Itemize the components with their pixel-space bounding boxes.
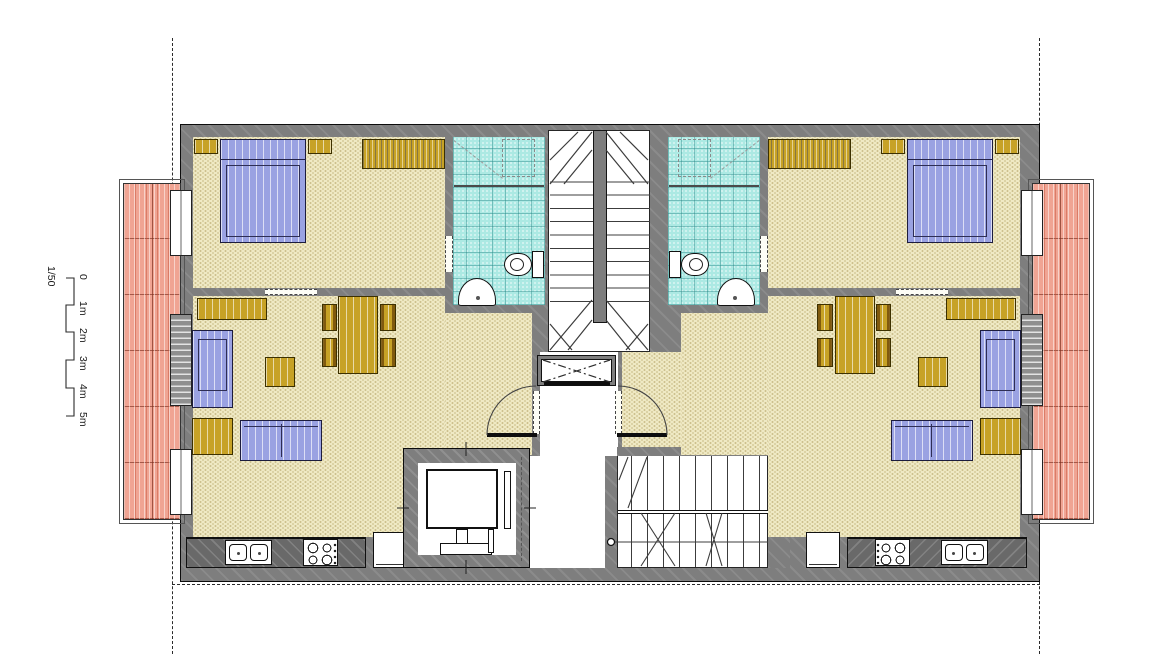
nightstand xyxy=(308,139,332,154)
nightstand xyxy=(881,139,905,154)
elevator-door-dash-line xyxy=(521,457,522,561)
side-table xyxy=(192,418,233,455)
apartment-unit-right xyxy=(603,0,1021,654)
entry-door-opening-right xyxy=(615,391,622,434)
bathroom-door-opening xyxy=(445,236,453,272)
shower-partition-line xyxy=(669,185,759,187)
shower-partition-line xyxy=(454,185,544,187)
refrigerator xyxy=(806,532,840,568)
entry-door-leaf-right xyxy=(617,433,667,437)
balcony-joint-line xyxy=(152,184,153,519)
cooktop xyxy=(875,539,910,566)
scale-tick-4m: 4m xyxy=(77,384,89,399)
sideboard xyxy=(197,298,267,320)
wardrobe xyxy=(362,139,445,169)
balcony-joint-line xyxy=(1060,184,1061,519)
elevator-side-post xyxy=(488,529,494,553)
kitchen-counter xyxy=(847,537,1027,568)
toilet-bowl xyxy=(681,253,709,276)
kitchen-sink xyxy=(941,540,988,565)
dining-chair xyxy=(876,304,891,331)
scale-tick-3m: 3m xyxy=(77,356,89,371)
bedroom-window xyxy=(170,190,192,256)
dining-chair xyxy=(380,304,396,331)
bedroom-door-opening xyxy=(896,289,948,295)
living-floor-ext xyxy=(681,313,768,455)
scale-tick-5m: 5m xyxy=(77,412,89,427)
floor-plan: 1/50 0 1m 2m 3m 4m 5m xyxy=(0,0,1157,654)
wardrobe xyxy=(768,139,851,169)
dining-chair xyxy=(380,338,396,367)
bedroom-window xyxy=(1021,190,1043,256)
balcony-door xyxy=(1021,314,1043,406)
cooktop xyxy=(303,539,338,566)
double-bed xyxy=(907,139,993,243)
dining-chair xyxy=(817,304,833,331)
dining-table xyxy=(835,296,875,374)
dining-chair xyxy=(876,338,891,367)
sink-basin xyxy=(966,544,984,561)
scale-tick-0: 0 xyxy=(77,274,89,280)
sink-basin xyxy=(229,544,247,561)
coffee-table xyxy=(918,357,948,387)
living-window xyxy=(170,449,192,515)
dining-table xyxy=(338,296,378,374)
roof-slope-dashed-box xyxy=(678,139,711,177)
toilet-tank xyxy=(532,251,544,278)
elevator-car xyxy=(426,469,498,529)
kitchen-counter xyxy=(186,537,366,568)
sink-basin xyxy=(250,544,268,561)
scale-tick-1m: 1m xyxy=(77,301,89,316)
entry-door-leaf-left xyxy=(487,433,537,437)
kitchen-sink xyxy=(225,540,272,565)
sideboard xyxy=(946,298,1016,320)
apartment-unit-left xyxy=(192,0,610,654)
refrigerator xyxy=(373,532,407,568)
elevator-shaft xyxy=(403,448,530,568)
dining-chair xyxy=(322,304,337,331)
double-bed xyxy=(220,139,306,243)
toilet-bowl xyxy=(504,253,532,276)
armchair xyxy=(980,330,1021,408)
sofa xyxy=(891,420,973,461)
bathroom-door-opening xyxy=(760,236,768,272)
roof-slope-dashed-box xyxy=(502,139,535,177)
side-table xyxy=(980,418,1021,455)
living-window xyxy=(1021,449,1043,515)
sofa xyxy=(240,420,322,461)
elevator-counterweight-rail xyxy=(504,471,511,529)
nightstand xyxy=(194,139,218,154)
armchair xyxy=(192,330,233,408)
coffee-table xyxy=(265,357,295,387)
elevator-buffer-base xyxy=(440,543,492,555)
entry-door-opening-left xyxy=(533,391,540,434)
toilet-tank xyxy=(669,251,681,278)
sink-basin xyxy=(945,544,963,561)
scale-ratio-label: 1/50 xyxy=(45,266,57,286)
balcony-door xyxy=(170,314,192,406)
scale-tick-2m: 2m xyxy=(77,328,89,343)
nightstand xyxy=(995,139,1019,154)
dining-chair xyxy=(322,338,337,367)
dining-chair xyxy=(817,338,833,367)
bedroom-door-opening xyxy=(265,289,317,295)
